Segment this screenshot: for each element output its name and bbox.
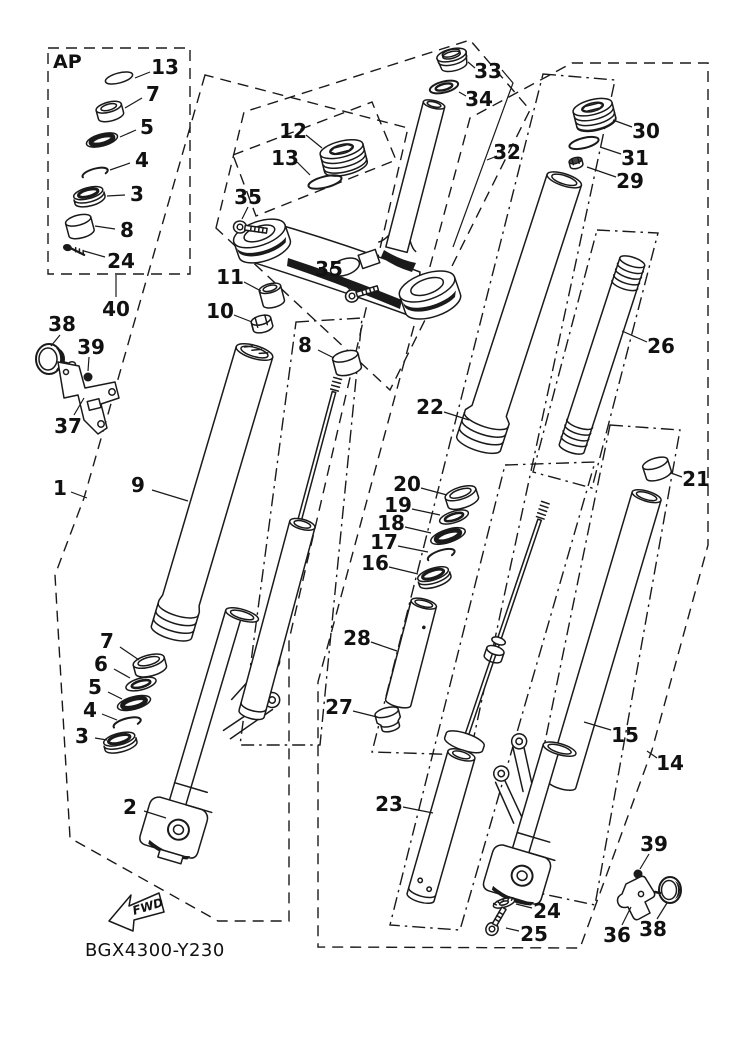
ap-collar-7 (95, 99, 125, 124)
nut-39-left (84, 373, 93, 382)
part-number-35: 35 (315, 257, 343, 281)
part-number-21: 21 (682, 467, 710, 491)
callout-leader-line (421, 488, 447, 495)
part-number-34: 34 (465, 87, 493, 111)
nut-10 (250, 313, 274, 335)
callout-leader-line (318, 350, 334, 358)
bolt-25 (484, 905, 510, 937)
part-number-37: 37 (54, 414, 82, 438)
callout-leader-line (125, 98, 142, 108)
part-number-2: 2 (123, 795, 137, 819)
part-number-26: 26 (647, 334, 675, 358)
part-number-24: 24 (533, 899, 561, 923)
part-number-27: 27 (325, 695, 353, 719)
callout-leader-line (135, 72, 150, 78)
part-number-9: 9 (131, 473, 145, 497)
callout-leader-line (88, 357, 89, 371)
callout-leader-line (234, 315, 252, 322)
callout-leader-line (114, 669, 130, 678)
ap-seal-5 (85, 130, 119, 150)
callout-leader-line (587, 167, 616, 177)
part-number-32: 32 (493, 140, 521, 164)
ap-seal-3 (72, 184, 107, 210)
bushing-8-center (331, 348, 362, 378)
part-number-8: 8 (298, 333, 312, 357)
callout-leader-line (51, 335, 60, 346)
part-number-13: 13 (271, 146, 299, 170)
callout-leader-line (306, 135, 322, 148)
o-ring-31 (568, 135, 600, 152)
part-number-14: 14 (656, 751, 684, 775)
bushing-21 (641, 455, 673, 484)
ap-bushing-8 (64, 212, 95, 241)
part-number-7: 7 (146, 82, 160, 106)
callout-leader-line (244, 282, 261, 291)
callout-leader-line (405, 527, 431, 533)
fork-outer-tube-9 (149, 340, 276, 645)
part-number-28: 28 (343, 626, 371, 650)
part-number-22: 22 (416, 395, 444, 419)
callout-leader-line (671, 473, 682, 477)
right-seal-stack (416, 483, 481, 592)
ap-inset-label: AP (53, 51, 82, 73)
part-number-39: 39 (640, 832, 668, 856)
part-number-16: 16 (361, 551, 389, 575)
bushing-11 (258, 281, 285, 310)
spring-seat-tube-28 (385, 596, 438, 710)
part-number-35: 35 (234, 185, 262, 209)
callout-leader-line (107, 195, 125, 196)
part-number-24: 24 (107, 249, 135, 273)
reflector-assembly-right (618, 870, 682, 920)
part-number-11: 11 (216, 265, 244, 289)
fwd-arrow: FWD (109, 893, 165, 931)
part-number-3: 3 (75, 724, 89, 748)
seal-5 (116, 693, 152, 714)
callout-leader-line (600, 147, 621, 154)
callout-leader-line (412, 509, 440, 515)
seal-18 (429, 524, 467, 547)
seal-3 (102, 729, 139, 756)
part-number-23: 23 (375, 792, 403, 816)
cap-bolt-12 (318, 136, 369, 180)
o-ring-13-center (307, 173, 343, 192)
part-number-5: 5 (88, 675, 102, 699)
reflector-38-right (655, 877, 681, 903)
clip-17 (426, 546, 455, 562)
cap-27 (374, 705, 403, 734)
bracket-36 (618, 876, 655, 919)
steering-stem-tube (378, 96, 453, 254)
callout-leader-line (297, 162, 310, 175)
part-number-5: 5 (140, 115, 154, 139)
callout-leader-line (110, 163, 130, 170)
callout-leader-line (613, 120, 632, 127)
inner-tube-22 (454, 167, 588, 457)
part-number-4: 4 (83, 698, 97, 722)
bearing-ring-34 (429, 78, 460, 96)
callout-leader-line (506, 928, 519, 931)
part-number-33: 33 (474, 59, 502, 83)
clip-4 (112, 715, 141, 730)
ap-washer-13 (104, 70, 134, 87)
part-number-40: 40 (102, 297, 130, 321)
ap-clip-4 (81, 166, 108, 180)
left-seal-stack (102, 651, 168, 756)
part-number-38: 38 (639, 917, 667, 941)
callout-leader-line (152, 490, 188, 501)
callout-leader-line (640, 854, 649, 869)
fork-exploded-diagram: FWD BGX4300-Y230 AP 13754382440383937191… (0, 0, 744, 1052)
callout-leader-line (95, 226, 115, 229)
part-number-39: 39 (77, 335, 105, 359)
part-number-10: 10 (206, 299, 234, 323)
drawing-code: BGX4300-Y230 (85, 940, 225, 961)
callout-leader-line (403, 807, 433, 813)
part-number-13: 13 (151, 55, 179, 79)
part-number-30: 30 (632, 119, 660, 143)
callout-leader-line (108, 692, 122, 699)
part-number-1: 1 (53, 476, 67, 500)
parts-diagram-page: FWD BGX4300-Y230 AP 13754382440383937191… (0, 0, 744, 1052)
right-lower-leg (460, 728, 587, 910)
spacer-20 (443, 483, 480, 513)
part-number-6: 6 (94, 652, 108, 676)
part-number-25: 25 (520, 922, 548, 946)
callout-leader-line (120, 130, 136, 137)
callout-leader-line (84, 251, 105, 257)
callout-leader-line (389, 567, 418, 574)
part-number-8: 8 (120, 218, 134, 242)
seal-16 (416, 564, 453, 592)
callout-leader-line (353, 711, 377, 717)
callout-leader-line (120, 647, 139, 660)
part-number-15: 15 (611, 723, 639, 747)
part-number-31: 31 (621, 146, 649, 170)
part-number-38: 38 (48, 312, 76, 336)
part-number-29: 29 (616, 169, 644, 193)
callout-leader-line (622, 331, 647, 342)
part-number-3: 3 (130, 182, 144, 206)
nut-29 (568, 156, 583, 170)
part-number-12: 12 (279, 119, 307, 143)
part-number-7: 7 (100, 629, 114, 653)
part-number-36: 36 (603, 923, 631, 947)
seal-spacer-7 (132, 651, 168, 680)
cap-bolt-30 (571, 95, 617, 135)
ap-screw-24 (62, 243, 86, 255)
callout-leader-line (102, 714, 117, 720)
left-damper-rod (296, 377, 342, 520)
part-number-4: 4 (135, 148, 149, 172)
callout-leader-line (371, 642, 397, 651)
